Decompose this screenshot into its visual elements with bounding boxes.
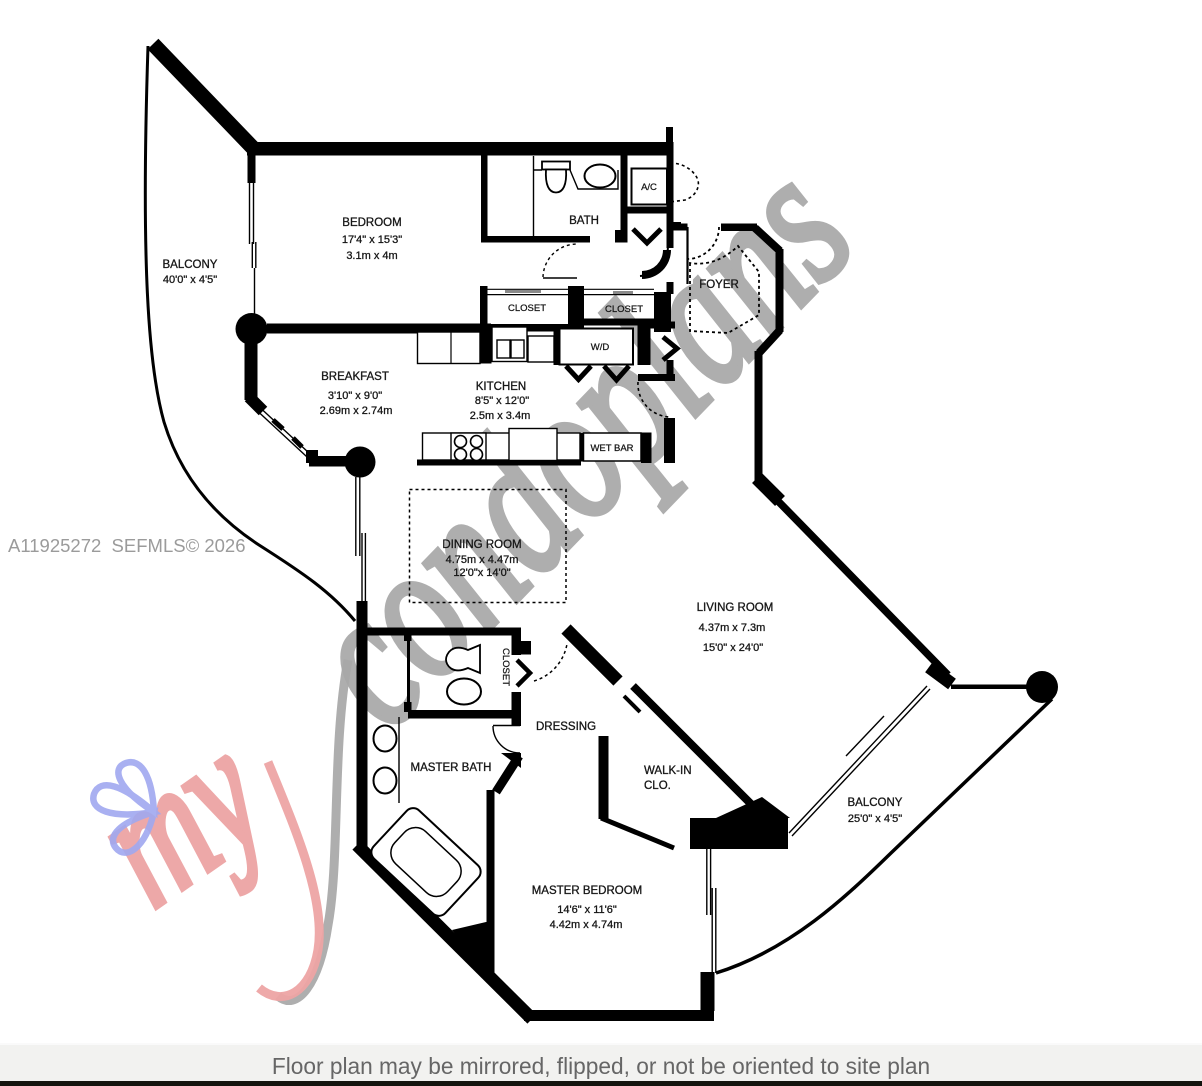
svg-text:KITCHEN: KITCHEN [476, 381, 526, 393]
svg-text:3'10" x 9'0": 3'10" x 9'0" [328, 390, 382, 402]
svg-text:17'4" x 15'3": 17'4" x 15'3" [342, 234, 402, 246]
svg-text:W/D: W/D [591, 342, 610, 353]
svg-text:FOYER: FOYER [699, 279, 739, 291]
svg-text:DRESSING: DRESSING [536, 721, 596, 733]
svg-text:A/C: A/C [641, 182, 657, 193]
svg-text:LIVING ROOM: LIVING ROOM [697, 602, 774, 614]
svg-text:15'0" x 24'0": 15'0" x 24'0" [703, 642, 763, 654]
svg-text:3.1m x 4m: 3.1m x 4m [346, 250, 397, 262]
svg-text:4.37m x 7.3m: 4.37m x 7.3m [699, 622, 766, 634]
svg-text:4.75m x 4.47m: 4.75m x 4.47m [446, 554, 519, 566]
svg-text:2.69m x 2.74m: 2.69m x 2.74m [320, 405, 393, 417]
svg-text:BREAKFAST: BREAKFAST [321, 371, 389, 383]
svg-text:BALCONY: BALCONY [848, 797, 903, 809]
svg-text:WALK-IN: WALK-IN [644, 765, 692, 777]
svg-text:BALCONY: BALCONY [163, 259, 218, 271]
svg-text:BEDROOM: BEDROOM [342, 217, 401, 229]
svg-text:CLOSET: CLOSET [508, 303, 546, 314]
svg-text:CLO.: CLO. [644, 780, 671, 792]
svg-text:2.5m x 3.4m: 2.5m x 3.4m [470, 410, 531, 422]
svg-text:4.42m x 4.74m: 4.42m x 4.74m [550, 919, 623, 931]
svg-text:CLOSET: CLOSET [500, 648, 511, 686]
svg-text:MASTER BATH: MASTER BATH [411, 762, 492, 774]
svg-text:WET BAR: WET BAR [590, 443, 633, 454]
svg-text:A11925272 SEFMLS© 2026: A11925272 SEFMLS© 2026 [8, 535, 246, 556]
svg-text:DINING ROOM: DINING ROOM [442, 539, 521, 551]
svg-text:CLOSET: CLOSET [605, 304, 643, 315]
svg-text:BATH: BATH [569, 215, 599, 227]
svg-text:8'5" x 12'0": 8'5" x 12'0" [475, 395, 529, 407]
svg-text:12'0"x 14'0": 12'0"x 14'0" [453, 567, 510, 579]
svg-text:MASTER BEDROOM: MASTER BEDROOM [532, 885, 643, 897]
svg-text:14'6" x 11'6": 14'6" x 11'6" [557, 904, 617, 916]
svg-text:Floor plan may be mirrored, fl: Floor plan may be mirrored, flipped, or … [272, 1053, 930, 1079]
svg-text:40'0" x 4'5": 40'0" x 4'5" [163, 274, 217, 286]
svg-text:25'0" x 4'5": 25'0" x 4'5" [848, 813, 902, 825]
